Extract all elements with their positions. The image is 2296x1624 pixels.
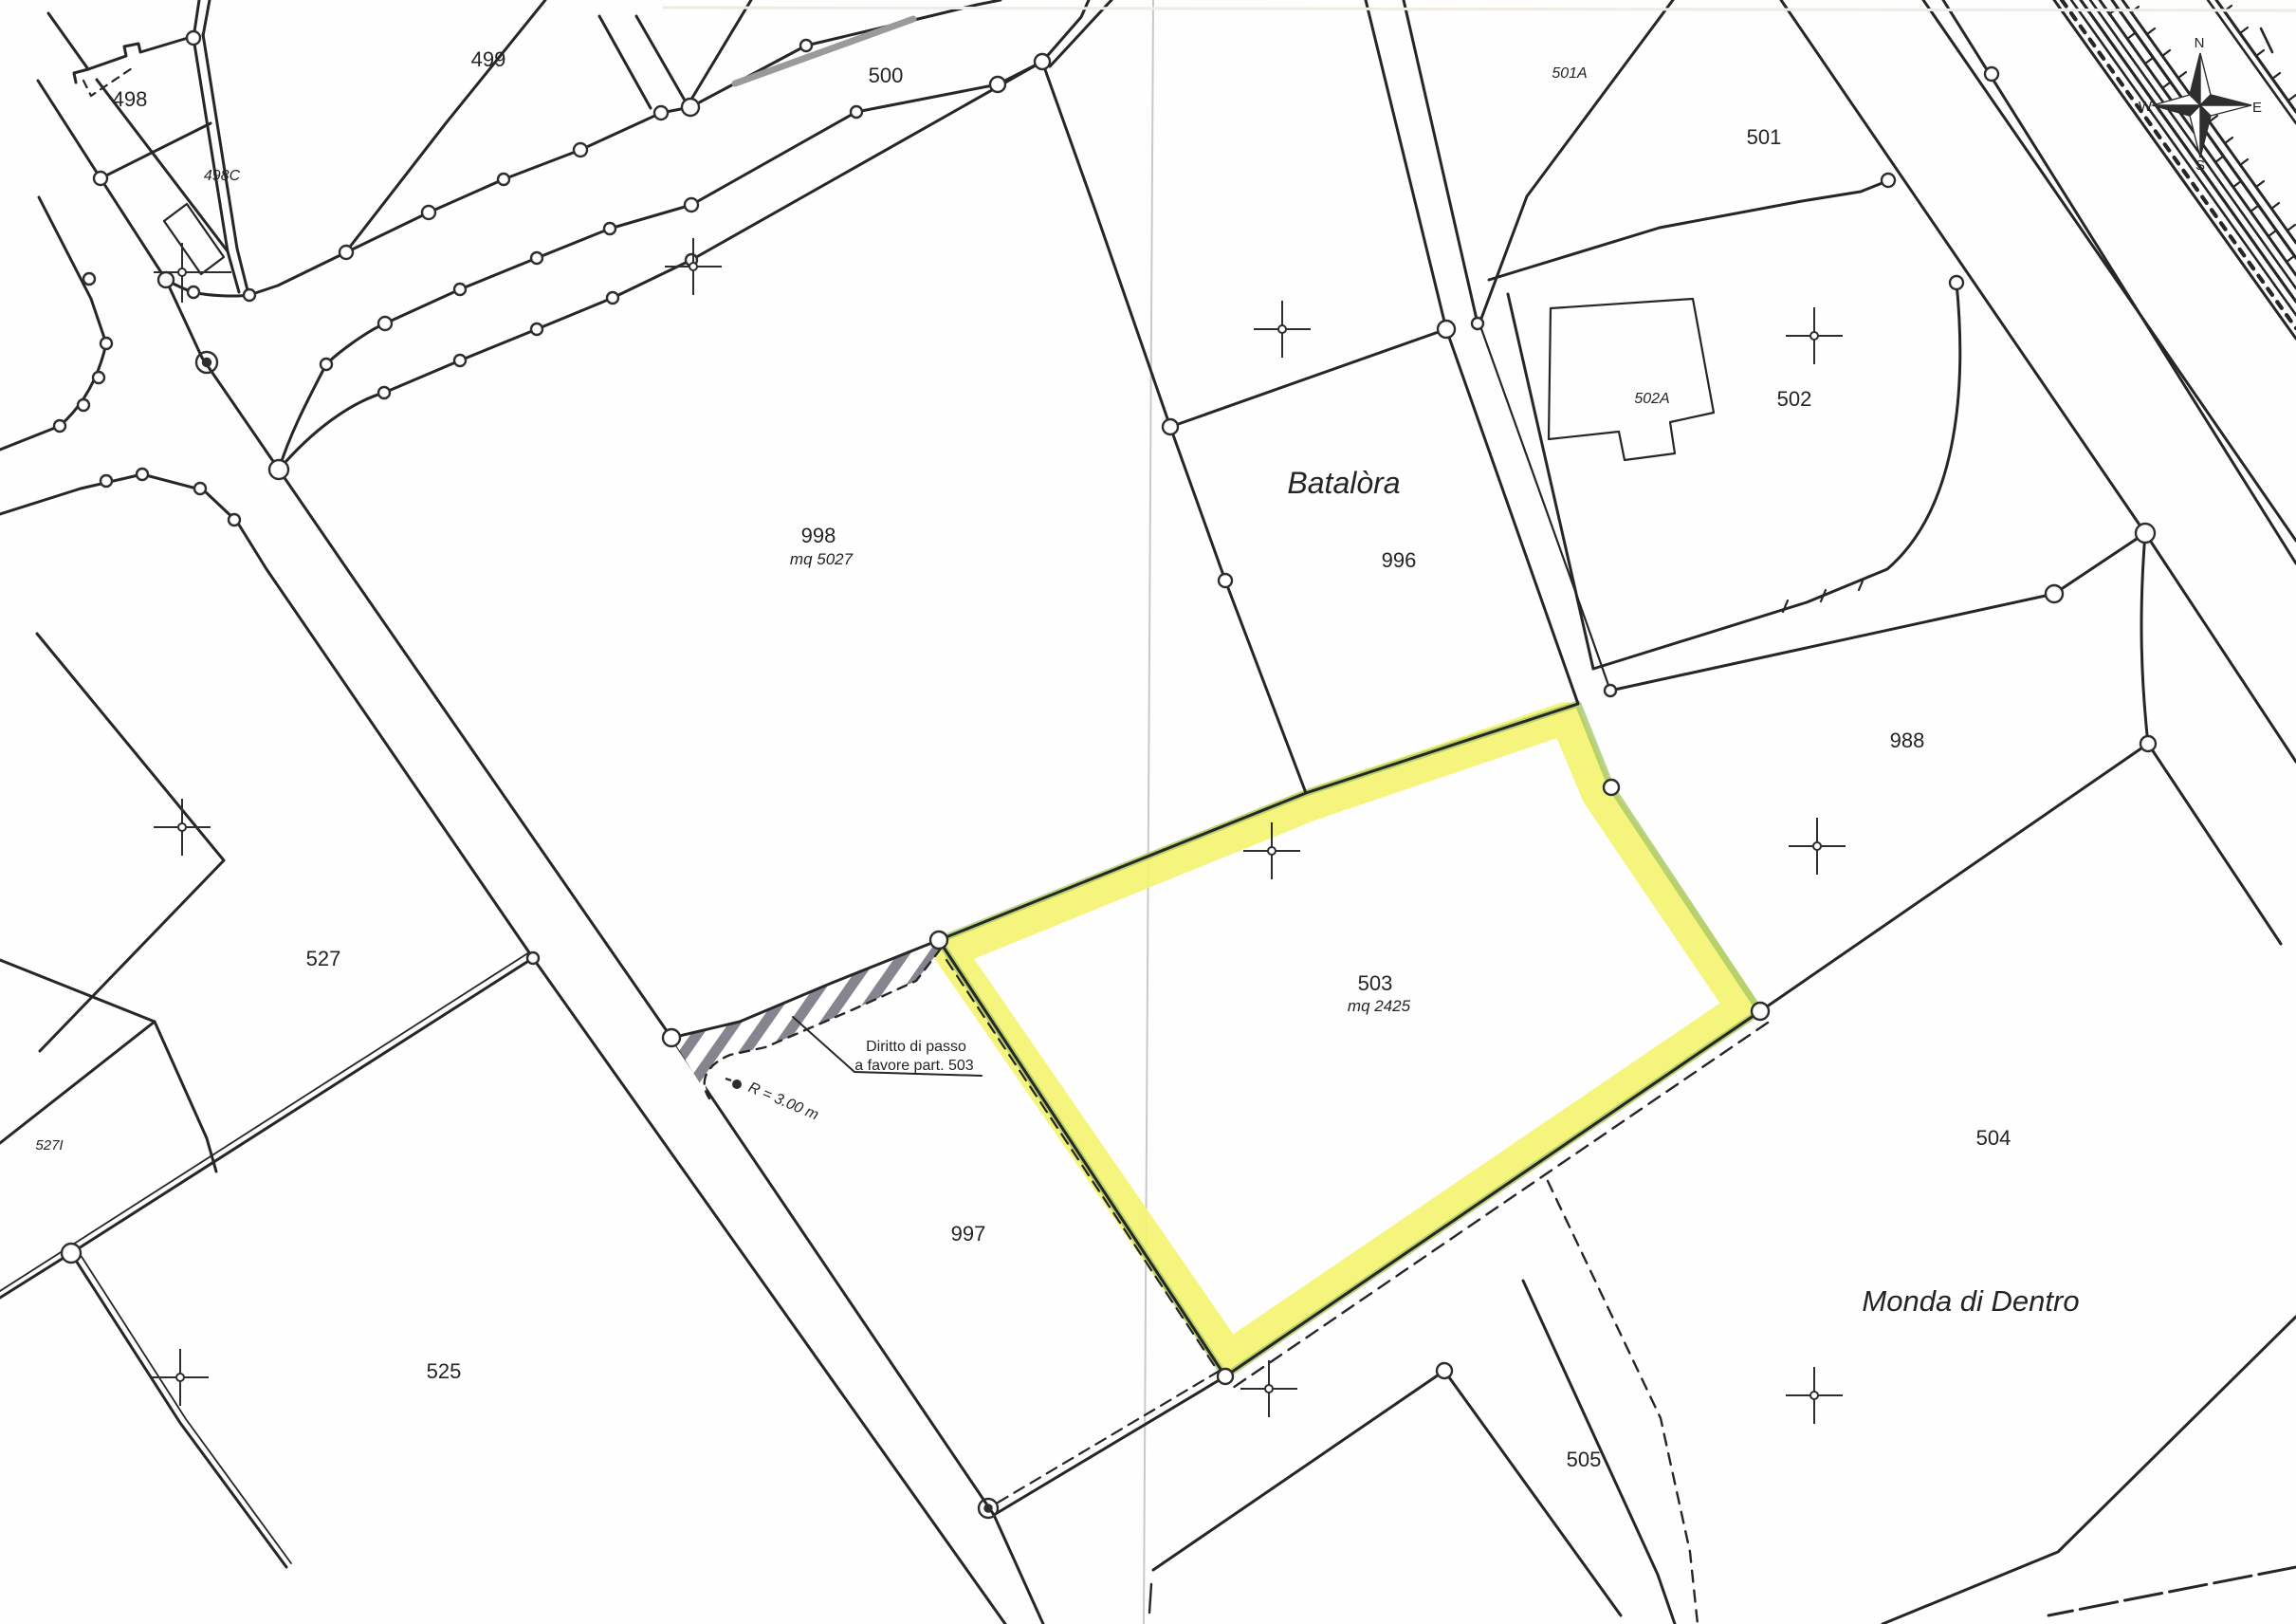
svg-text:Monda di Dentro: Monda di Dentro xyxy=(1862,1284,2079,1318)
svg-text:mq 5027: mq 5027 xyxy=(790,550,854,568)
svg-text:S: S xyxy=(2195,157,2205,174)
svg-text:503: 503 xyxy=(1358,971,1393,995)
svg-text:W: W xyxy=(2139,99,2153,115)
svg-text:502: 502 xyxy=(1777,387,1812,411)
svg-text:997: 997 xyxy=(951,1222,986,1246)
svg-text:Diritto di passo: Diritto di passo xyxy=(866,1039,966,1055)
svg-text:527: 527 xyxy=(306,947,341,970)
svg-text:501: 501 xyxy=(1747,125,1782,149)
svg-text:998: 998 xyxy=(801,524,836,547)
svg-text:498: 498 xyxy=(113,87,148,111)
svg-text:N: N xyxy=(2195,35,2205,51)
svg-text:525: 525 xyxy=(427,1359,462,1383)
svg-text:mq 2425: mq 2425 xyxy=(1348,997,1411,1015)
svg-text:500: 500 xyxy=(869,64,904,87)
svg-text:a favore part. 503: a favore part. 503 xyxy=(854,1058,974,1074)
svg-text:501A: 501A xyxy=(1552,65,1587,82)
svg-text:502A: 502A xyxy=(1634,391,1669,407)
svg-text:996: 996 xyxy=(1382,548,1417,572)
svg-text:527I: 527I xyxy=(35,1137,63,1153)
svg-text:E: E xyxy=(2252,100,2262,116)
svg-text:505: 505 xyxy=(1567,1448,1602,1471)
svg-text:988: 988 xyxy=(1890,729,1925,752)
svg-text:498C: 498C xyxy=(204,168,241,184)
svg-text:504: 504 xyxy=(1976,1126,2011,1150)
svg-text:Batalòra: Batalòra xyxy=(1287,466,1400,500)
svg-text:499: 499 xyxy=(471,47,506,71)
